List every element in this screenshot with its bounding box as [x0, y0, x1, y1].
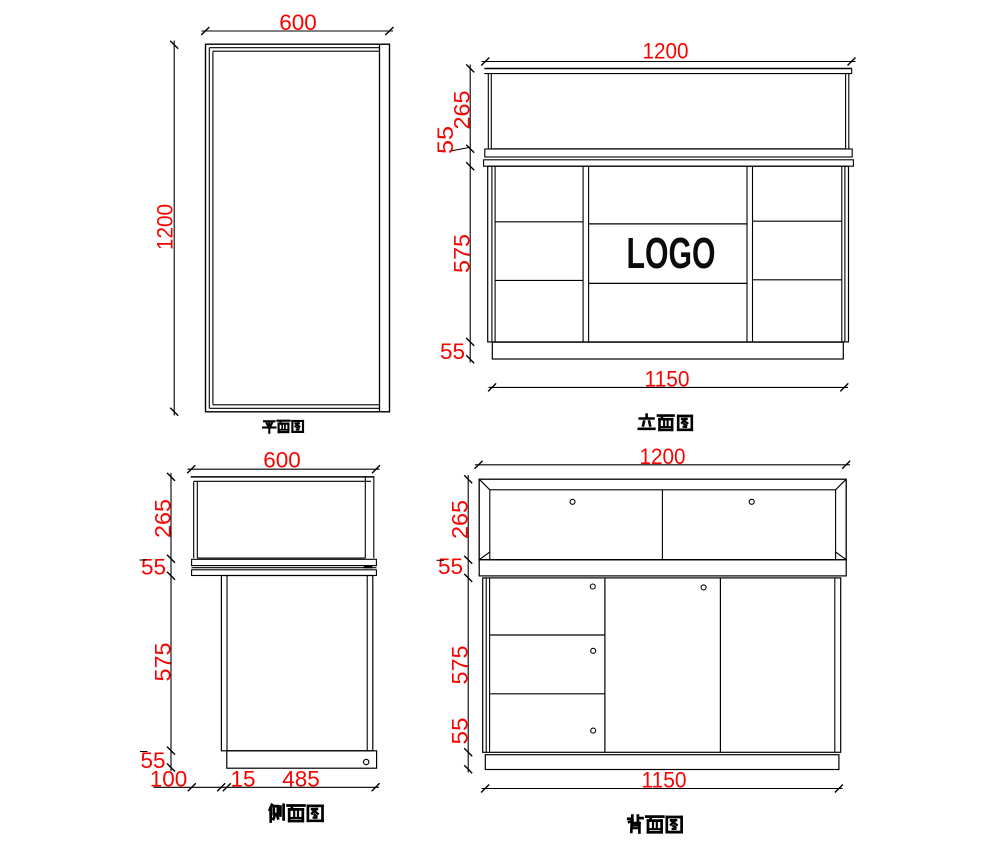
svg-text:485: 485	[282, 767, 320, 792]
svg-text:1200: 1200	[643, 38, 689, 63]
svg-text:265: 265	[448, 500, 473, 539]
svg-text:LOGO: LOGO	[627, 230, 716, 278]
svg-text:265: 265	[450, 91, 475, 130]
svg-text:1150: 1150	[642, 767, 687, 792]
svg-text:265: 265	[151, 499, 176, 538]
svg-text:15: 15	[230, 767, 255, 792]
svg-text:55: 55	[440, 339, 465, 364]
svg-text:1150: 1150	[645, 366, 690, 391]
svg-text:55: 55	[448, 718, 473, 745]
svg-text:600: 600	[279, 10, 317, 35]
svg-text:55: 55	[141, 554, 166, 579]
svg-text:1200: 1200	[640, 444, 686, 469]
svg-text:575: 575	[450, 234, 475, 273]
svg-text:55: 55	[438, 554, 463, 579]
svg-text:600: 600	[263, 448, 301, 473]
svg-text:575: 575	[448, 646, 473, 685]
svg-text:1200: 1200	[153, 204, 178, 250]
svg-text:100: 100	[150, 767, 188, 792]
svg-text:575: 575	[151, 643, 176, 682]
svg-text:55: 55	[433, 126, 458, 154]
